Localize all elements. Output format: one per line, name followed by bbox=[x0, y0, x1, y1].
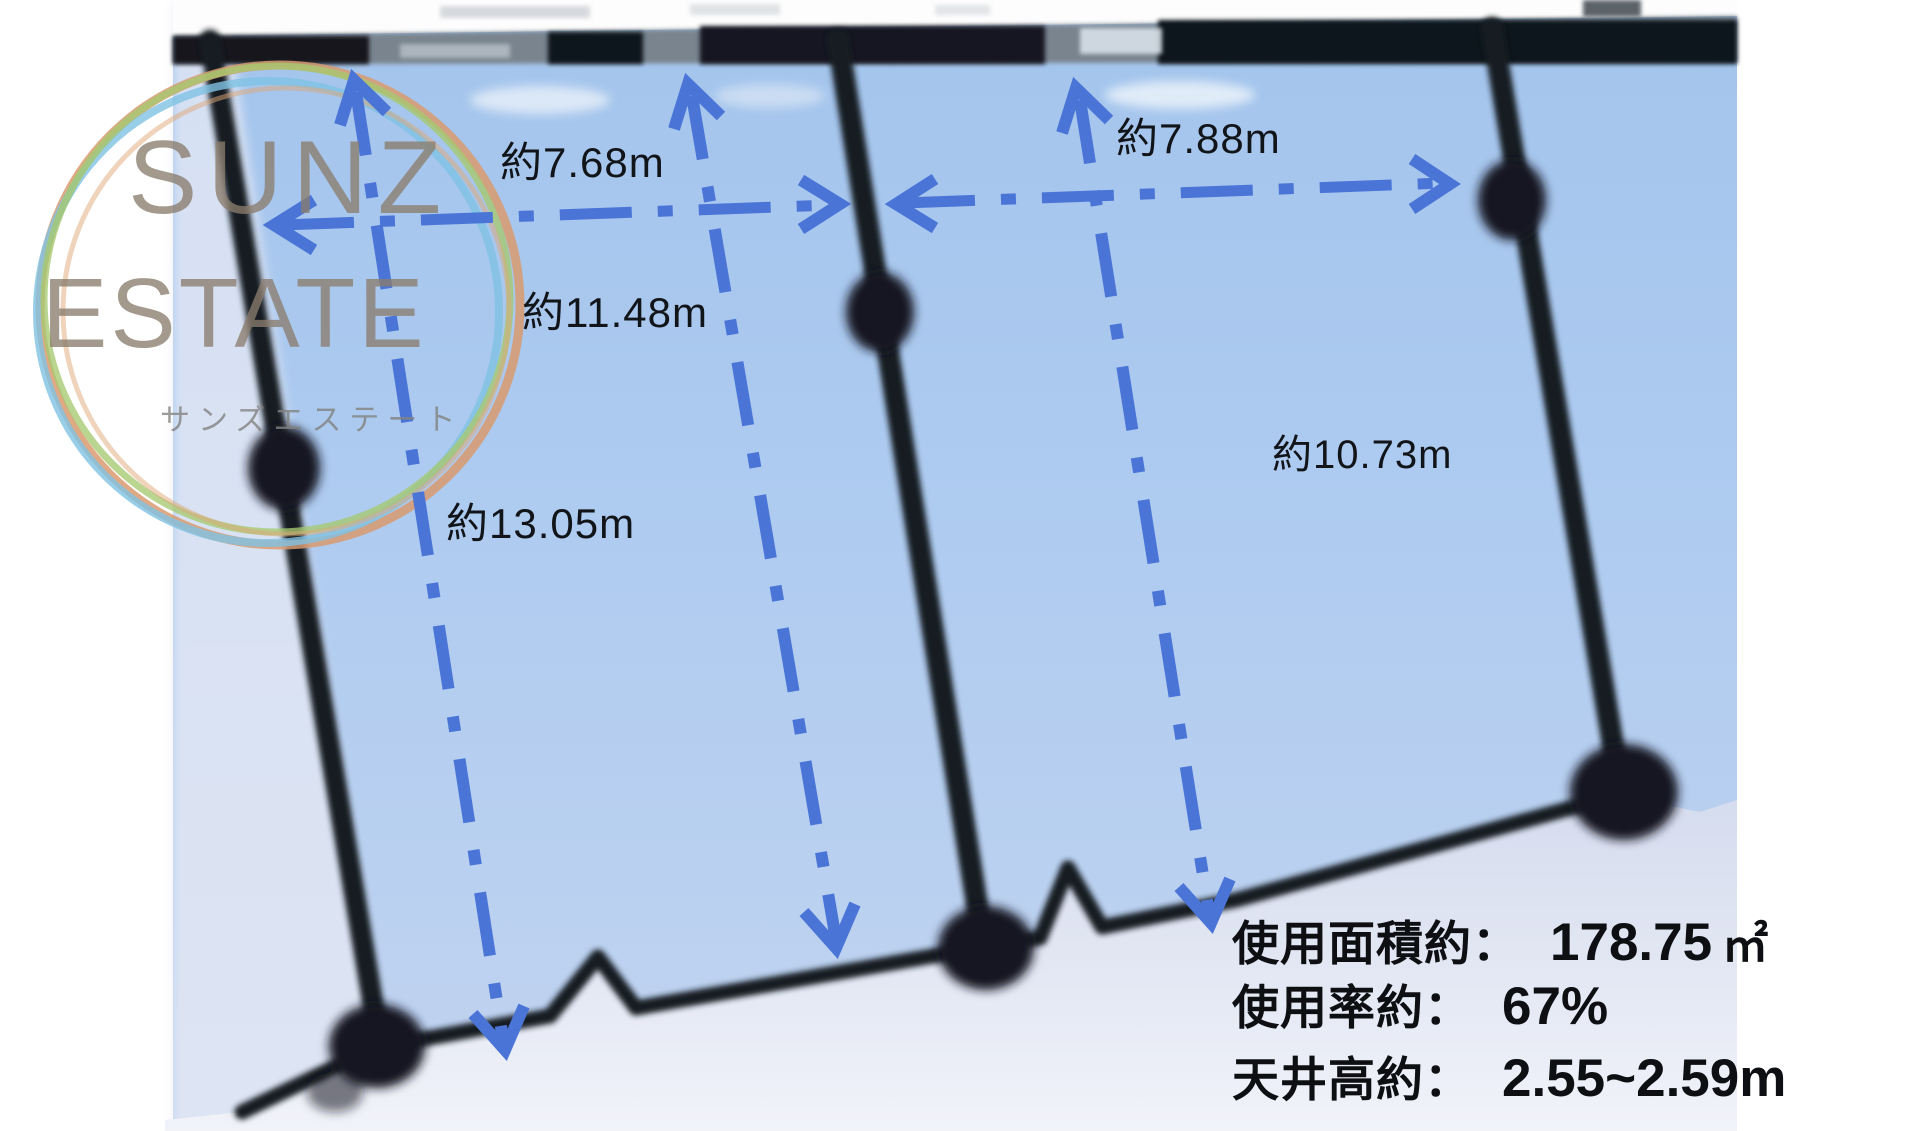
dimension-label-bay-right-width: 約7.88m bbox=[1116, 118, 1281, 160]
watermark-line2: ESTATE bbox=[42, 264, 427, 362]
summary-row-usage-ratio: 使用率約： 67% bbox=[1232, 980, 1608, 1033]
usage-ratio-value: 67% bbox=[1502, 980, 1608, 1033]
summary-row-ceiling-height: 天井高約： 2.55~2.59m bbox=[1232, 1052, 1786, 1105]
dimension-label-left-depth: 約13.05m bbox=[446, 503, 635, 545]
summary-row-usable-area: 使用面積約： 178.75 ㎡ bbox=[1232, 916, 1768, 969]
ceiling-height-value: 2.55~2.59m bbox=[1502, 1052, 1786, 1105]
watermark-subtitle: サンズエステート bbox=[160, 406, 463, 436]
usable-area-unit: ㎡ bbox=[1722, 923, 1768, 969]
usable-area-value: 178.75 bbox=[1550, 916, 1712, 969]
watermark-line1: SUNZ bbox=[128, 126, 451, 230]
dimension-label-middle-depth: 約11.48m bbox=[522, 292, 708, 334]
usage-ratio-label: 使用率約： bbox=[1232, 986, 1472, 1033]
dimension-label-bay-left-width: 約7.68m bbox=[500, 142, 665, 184]
dimension-label-right-depth: 約10.73m bbox=[1272, 435, 1452, 475]
annotated-roof-measurement-photo: SUNZ ESTATE サンズエステート 約7.68m 約7.88m 約11.4… bbox=[0, 0, 1920, 1131]
ceiling-height-label: 天井高約： bbox=[1232, 1058, 1472, 1105]
usable-area-label: 使用面積約： bbox=[1232, 922, 1520, 969]
